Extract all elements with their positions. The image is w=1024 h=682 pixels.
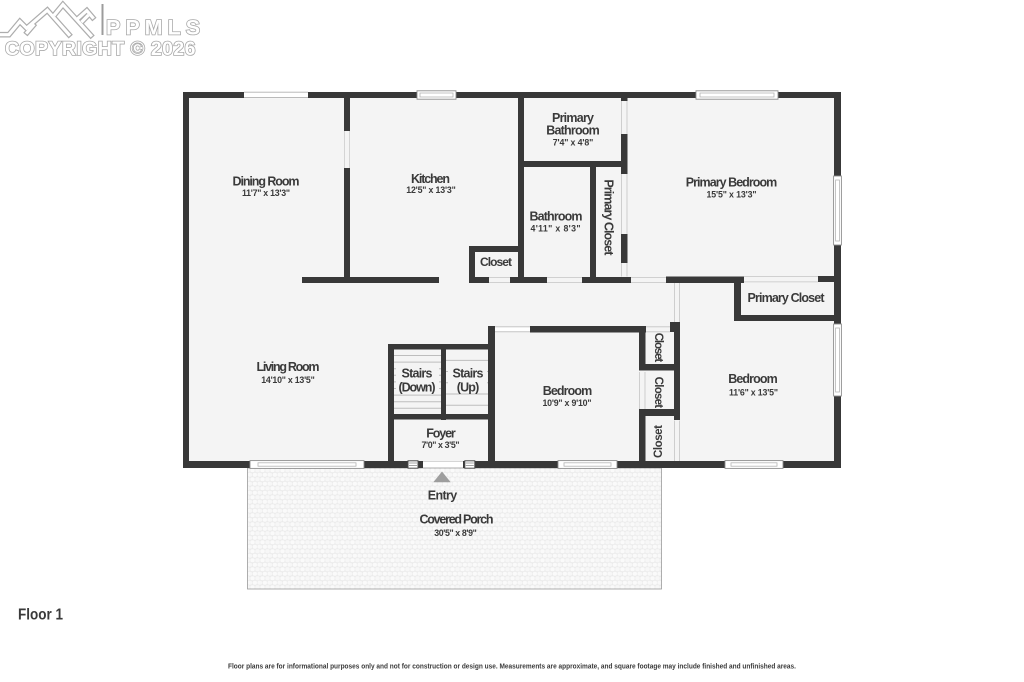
- svg-text:Floor plans are for informatio: Floor plans are for informational purpos…: [228, 663, 796, 670]
- svg-text:Stairs: Stairs: [453, 367, 484, 381]
- svg-text:Bedroom: Bedroom: [543, 384, 593, 398]
- svg-text:Floor 1: Floor 1: [18, 607, 63, 624]
- svg-text:Covered Porch: Covered Porch: [420, 513, 494, 527]
- svg-text:Closet: Closet: [652, 377, 664, 409]
- svg-text:(Down): (Down): [399, 381, 436, 395]
- svg-text:Bedroom: Bedroom: [728, 372, 778, 386]
- svg-text:7'4" x 4'8": 7'4" x 4'8": [553, 137, 594, 147]
- svg-text:15'5" x 13'3": 15'5" x 13'3": [707, 190, 757, 200]
- svg-text:Primary Bedroom: Primary Bedroom: [686, 176, 778, 190]
- svg-text:(Up): (Up): [457, 381, 480, 395]
- svg-text:Entry: Entry: [428, 489, 458, 503]
- svg-text:Foyer: Foyer: [426, 426, 456, 440]
- svg-text:Stairs: Stairs: [402, 367, 433, 381]
- svg-text:Closet: Closet: [653, 425, 665, 458]
- svg-text:Closet: Closet: [652, 333, 664, 363]
- svg-text:12'5" x 13'3": 12'5" x 13'3": [406, 185, 456, 195]
- svg-text:Closet: Closet: [480, 255, 512, 269]
- svg-text:4'11" x 8'3": 4'11" x 8'3": [531, 224, 581, 234]
- svg-text:PPMLS: PPMLS: [106, 16, 205, 40]
- svg-text:Primary Closet: Primary Closet: [602, 179, 616, 256]
- svg-text:14'10" x 13'5": 14'10" x 13'5": [261, 375, 315, 385]
- svg-text:Dining Room: Dining Room: [233, 174, 300, 188]
- svg-text:11'6" x 13'5": 11'6" x 13'5": [729, 388, 778, 398]
- svg-text:COPYRIGHT © 2026: COPYRIGHT © 2026: [5, 38, 196, 60]
- svg-text:Bathroom: Bathroom: [546, 124, 600, 138]
- svg-text:30'5" x 8'9": 30'5" x 8'9": [434, 528, 477, 538]
- svg-text:7'0" x 3'5": 7'0" x 3'5": [422, 440, 460, 450]
- svg-text:10'9" x 9'10": 10'9" x 9'10": [543, 398, 592, 408]
- svg-text:Living Room: Living Room: [257, 360, 320, 374]
- svg-text:11'7" x 13'3": 11'7" x 13'3": [242, 188, 290, 198]
- svg-text:Bathroom: Bathroom: [530, 210, 583, 224]
- svg-text:Primary Closet: Primary Closet: [748, 291, 826, 305]
